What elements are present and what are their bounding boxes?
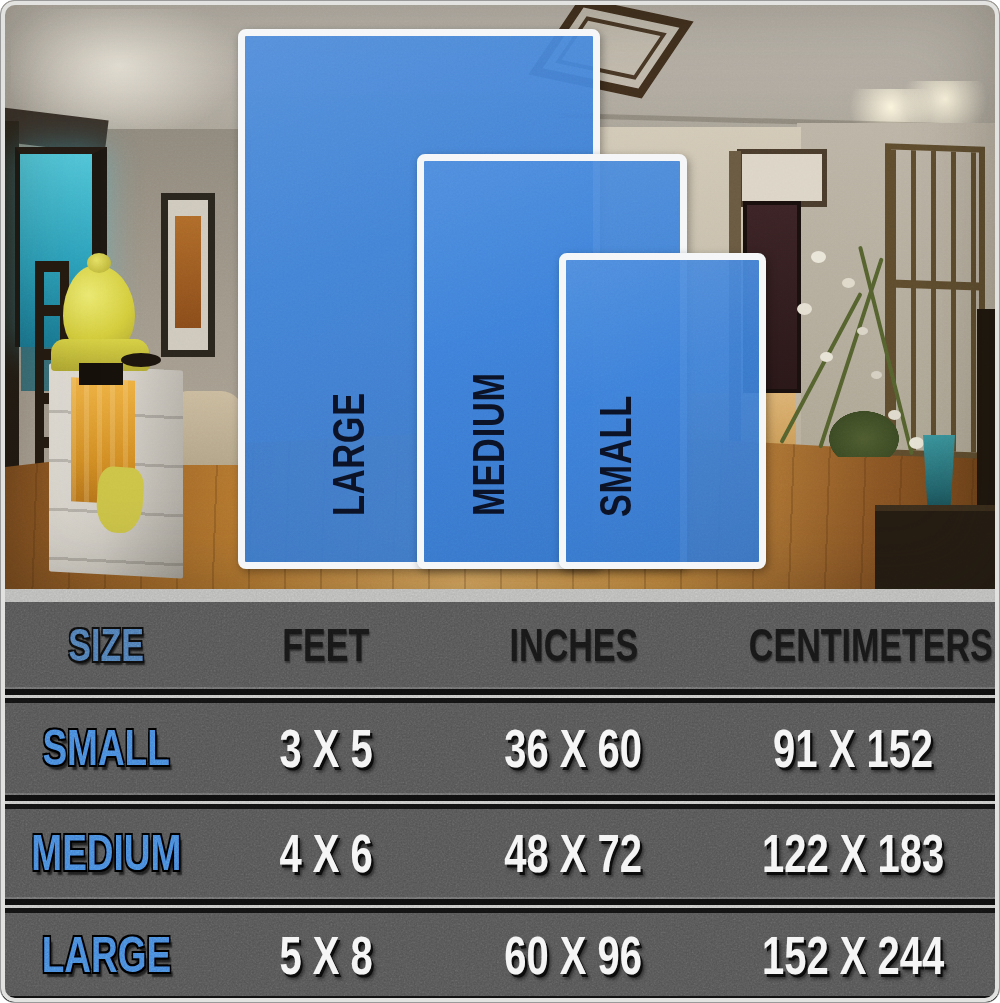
black-bowl [121, 353, 161, 367]
header-cell-size: SIZE [1, 618, 211, 672]
rug-small: SMALL [559, 253, 766, 569]
cell-medium-feet: 4 X 6 [211, 822, 441, 884]
row-separator [1, 793, 1000, 809]
dark-cabinet-column [977, 309, 1000, 515]
cell-medium-size: MEDIUM [1, 824, 211, 882]
cell-small-feet: 3 X 5 [211, 717, 441, 779]
orchid-blossoms [811, 251, 826, 263]
rug-large-label: LARGE [324, 392, 374, 516]
cell-small-inches: 36 X 60 [441, 717, 706, 779]
header-cell-inches: INCHES [441, 618, 706, 672]
cell-large-size: LARGE [1, 926, 211, 984]
size-table: SIZE FEET INCHES CENTIMETERS SMALL 3 X 5… [1, 589, 1000, 1003]
table-top-strip [1, 589, 1000, 602]
wall-picture-frame [161, 193, 215, 357]
hallway-wall-panel [737, 149, 827, 207]
picture-art [175, 216, 201, 328]
row-separator [1, 897, 1000, 913]
table-row-small: SMALL 3 X 5 36 X 60 91 X 152 [1, 703, 1000, 793]
rug-small-label: SMALL [591, 395, 641, 517]
table-header-row: SIZE FEET INCHES CENTIMETERS [1, 602, 1000, 687]
table-bottom-strip [1, 996, 1000, 1003]
plant-leaves [829, 411, 899, 457]
cell-large-inches: 60 X 96 [441, 924, 706, 986]
cell-large-feet: 5 X 8 [211, 924, 441, 986]
table-row-large: LARGE 5 X 8 60 X 96 152 X 244 [1, 913, 1000, 996]
header-cell-centimeters: CENTIMETERS [706, 618, 1000, 672]
cell-large-centimeters: 152 X 244 [706, 924, 1000, 986]
header-cell-feet: FEET [211, 618, 441, 672]
dark-sideboard [875, 505, 1000, 589]
cell-small-size: SMALL [1, 719, 211, 777]
buddha-pedestal [79, 363, 123, 385]
room-photo: LARGE MEDIUM SMALL [1, 1, 1000, 589]
cell-small-centimeters: 91 X 152 [706, 717, 1000, 779]
rug-medium-label: MEDIUM [464, 372, 514, 516]
cell-medium-centimeters: 122 X 183 [706, 822, 1000, 884]
sofa-arm [179, 391, 243, 465]
cell-medium-inches: 48 X 72 [441, 822, 706, 884]
rug-size-chart-graphic: LARGE MEDIUM SMALL SIZE FEET INCHES CENT… [0, 0, 1000, 1003]
row-separator [1, 687, 1000, 703]
table-row-medium: MEDIUM 4 X 6 48 X 72 122 X 183 [1, 809, 1000, 897]
